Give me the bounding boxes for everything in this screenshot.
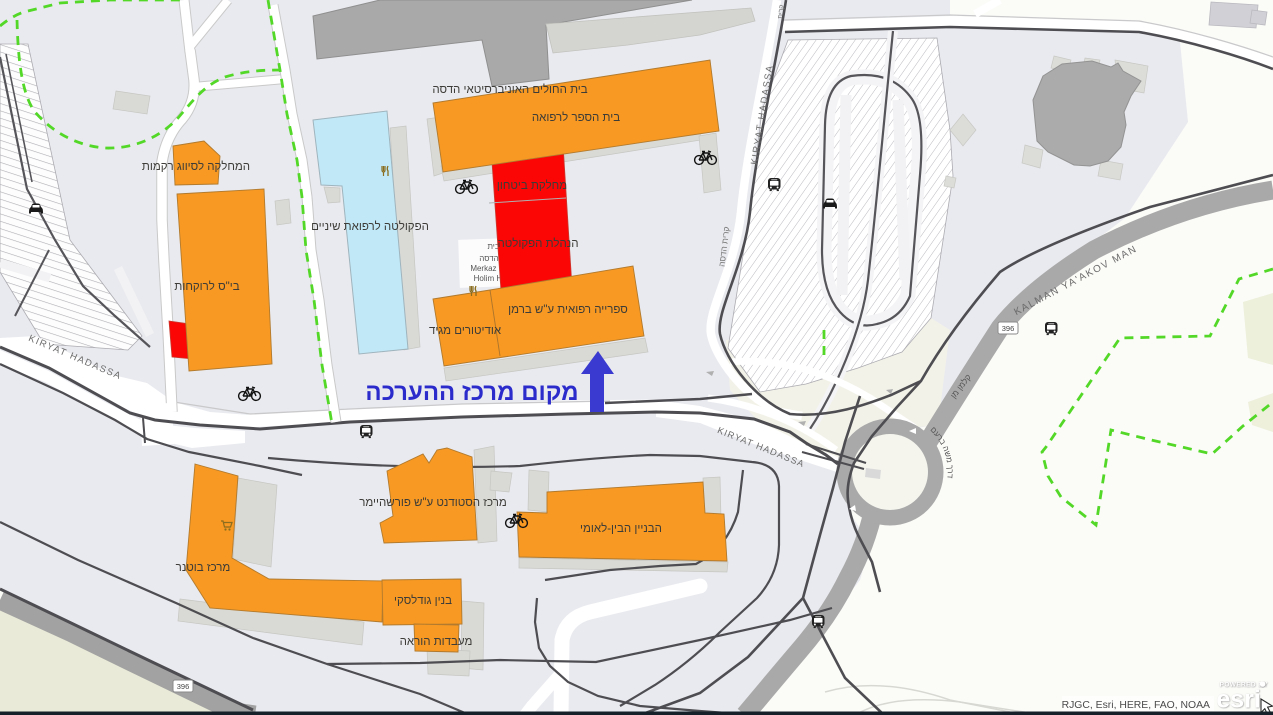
svg-text:מחלקת ביטחון: מחלקת ביטחון	[497, 179, 567, 192]
svg-text:396: 396	[177, 682, 190, 691]
svg-text:הנהלת הפקולטה: הנהלת הפקולטה	[497, 237, 578, 250]
svg-text:הבניין הבין-לאומי: הבניין הבין-לאומי	[580, 522, 662, 535]
svg-text:esri: esri	[1216, 685, 1260, 713]
svg-text:מרכז בוטנר: מרכז בוטנר	[176, 562, 231, 574]
svg-text:הפקולטה לרפואת שיניים: הפקולטה לרפואת שיניים	[311, 220, 429, 233]
svg-text:אודיטורים מגיד: אודיטורים מגיד	[429, 325, 502, 337]
svg-text:מעבדות הוראה: מעבדות הוראה	[400, 636, 473, 648]
svg-text:בית הספר לרפואה: בית הספר לרפואה	[532, 111, 620, 124]
svg-text:396: 396	[1002, 324, 1015, 333]
svg-text:RJGC, Esri, HERE, FAO, NOAA: RJGC, Esri, HERE, FAO, NOAA	[1062, 700, 1210, 711]
svg-text:ספרייה רפואית ע"ש ברמן: ספרייה רפואית ע"ש ברמן	[508, 304, 628, 316]
svg-text:מקום מרכז ההערכה: מקום מרכז ההערכה	[365, 379, 578, 406]
svg-text:בנין גודלסקי: בנין גודלסקי	[394, 594, 452, 607]
svg-text:בית החולים האוניברסיטאי הדסה: בית החולים האוניברסיטאי הדסה	[432, 83, 587, 96]
svg-text:המחלקה לסיווג רקמות: המחלקה לסיווג רקמות	[142, 160, 250, 173]
svg-text:בי"ס לרוקחות: בי"ס לרוקחות	[174, 280, 239, 293]
svg-text:מרכז הסטודנט ע"ש פורשהיימר: מרכז הסטודנט ע"ש פורשהיימר	[359, 497, 507, 509]
